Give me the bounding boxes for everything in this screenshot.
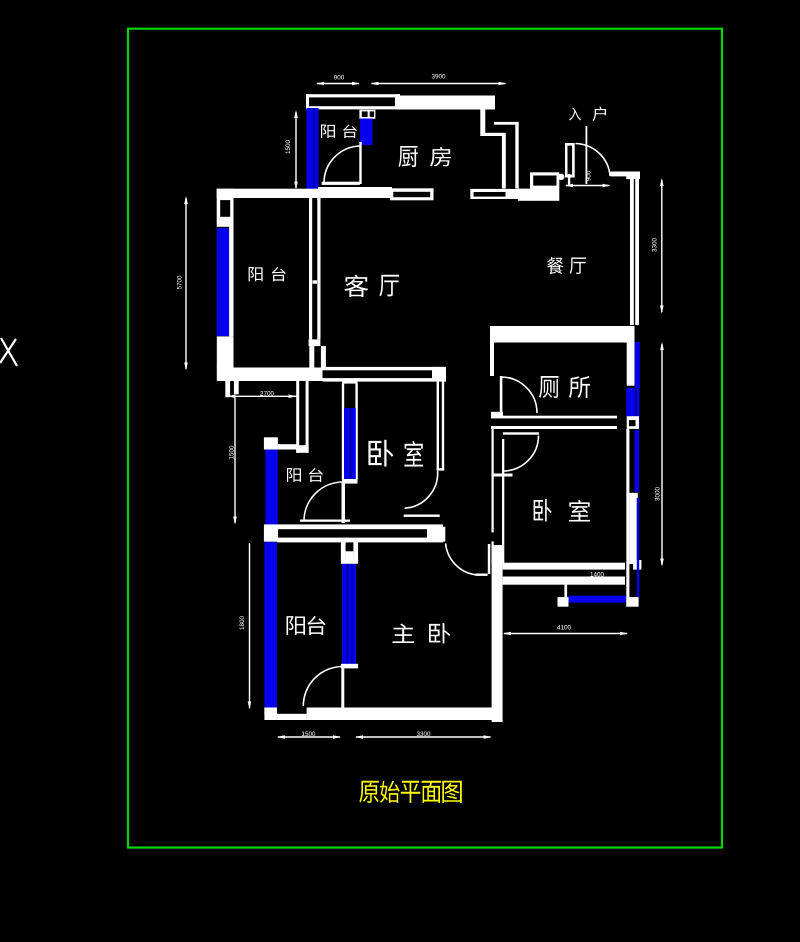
svg-text:3300: 3300 xyxy=(652,238,659,253)
svg-text:5700: 5700 xyxy=(177,275,184,290)
svg-text:3300: 3300 xyxy=(416,731,431,738)
svg-text:3900: 3900 xyxy=(431,74,446,81)
svg-text:1500: 1500 xyxy=(285,140,292,155)
svg-text:3000: 3000 xyxy=(654,487,661,502)
svg-text:2700: 2700 xyxy=(260,391,275,398)
svg-text:900: 900 xyxy=(585,170,592,181)
svg-text:1800: 1800 xyxy=(239,616,246,631)
svg-text:1400: 1400 xyxy=(590,572,605,579)
svg-text:1500: 1500 xyxy=(229,445,236,460)
svg-text:900: 900 xyxy=(334,75,345,82)
svg-text:4100: 4100 xyxy=(557,625,572,632)
svg-text:1500: 1500 xyxy=(301,731,316,738)
